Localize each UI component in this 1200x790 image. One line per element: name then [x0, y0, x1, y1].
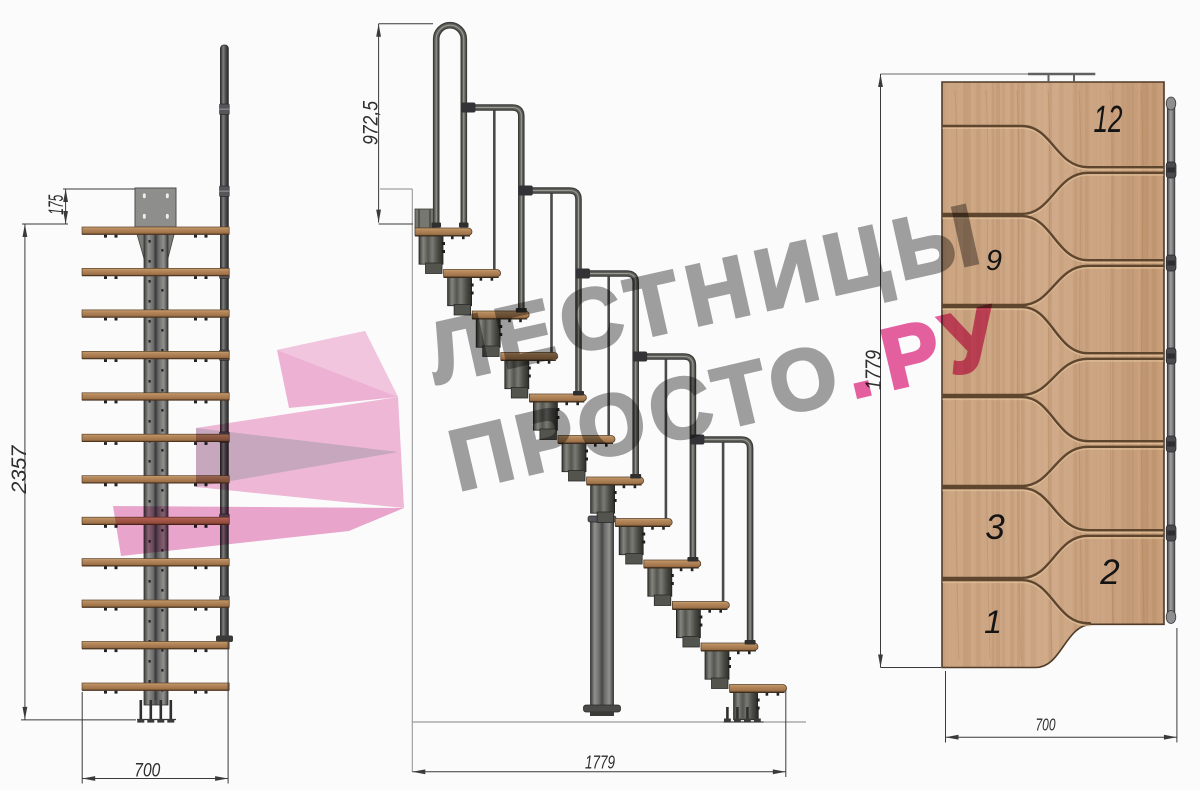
- svg-text:972,5: 972,5: [360, 101, 383, 145]
- svg-text:3: 3: [985, 508, 1005, 547]
- svg-text:2: 2: [1099, 553, 1119, 592]
- svg-text:700: 700: [1036, 714, 1056, 734]
- svg-text:700: 700: [134, 760, 160, 782]
- svg-text:1779: 1779: [585, 753, 615, 773]
- svg-text:175: 175: [45, 195, 68, 215]
- svg-text:12: 12: [1094, 99, 1123, 141]
- svg-text:1: 1: [984, 604, 1002, 640]
- svg-text:2357: 2357: [7, 445, 31, 495]
